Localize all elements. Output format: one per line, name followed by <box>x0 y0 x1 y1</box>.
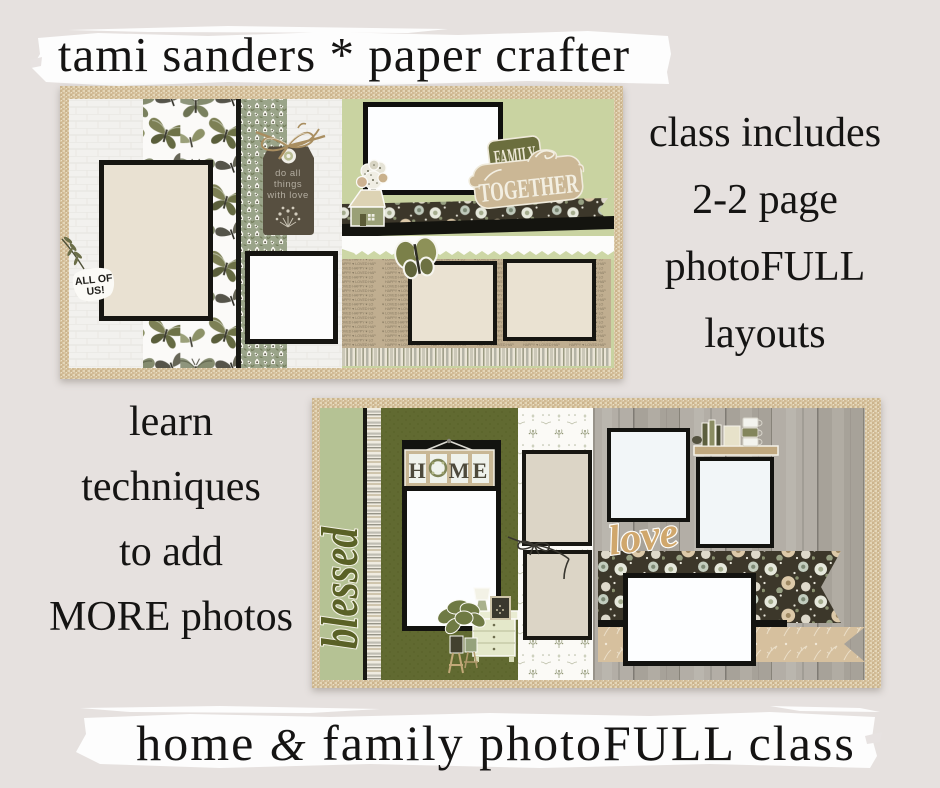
svg-text:things: things <box>274 179 302 190</box>
svg-text:do all: do all <box>275 168 301 179</box>
svg-text:blessed: blessed <box>312 526 369 649</box>
svg-text:E: E <box>473 458 488 483</box>
svg-text:US!: US! <box>86 284 105 298</box>
svg-text:M: M <box>449 458 470 483</box>
svg-text:love: love <box>605 509 681 564</box>
svg-text:H: H <box>408 458 425 483</box>
svg-text:with love: with love <box>266 190 308 201</box>
